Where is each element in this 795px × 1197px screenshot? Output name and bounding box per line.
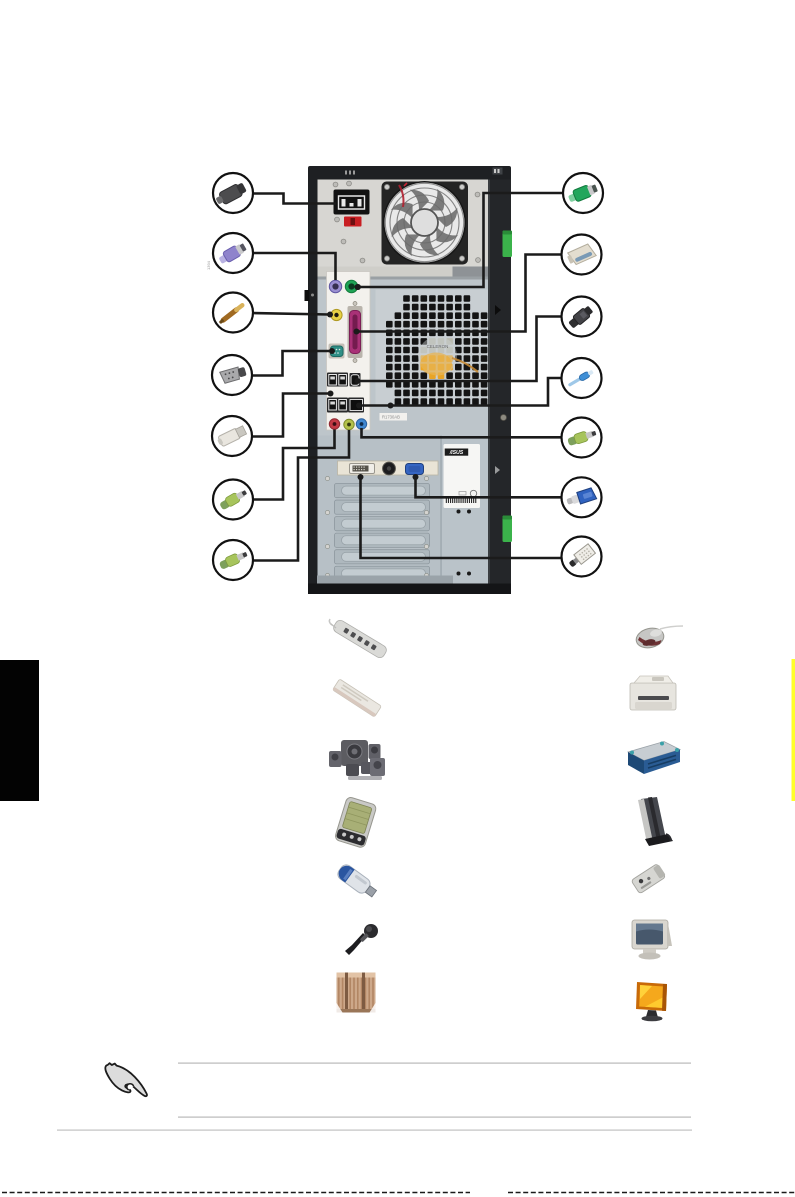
svg-text:R1730AB: R1730AB (382, 415, 400, 420)
svg-text:1394: 1394 (206, 260, 211, 270)
svg-text:/ISUS: /ISUS (449, 450, 464, 456)
svg-text:CELERON: CELERON (427, 344, 449, 349)
